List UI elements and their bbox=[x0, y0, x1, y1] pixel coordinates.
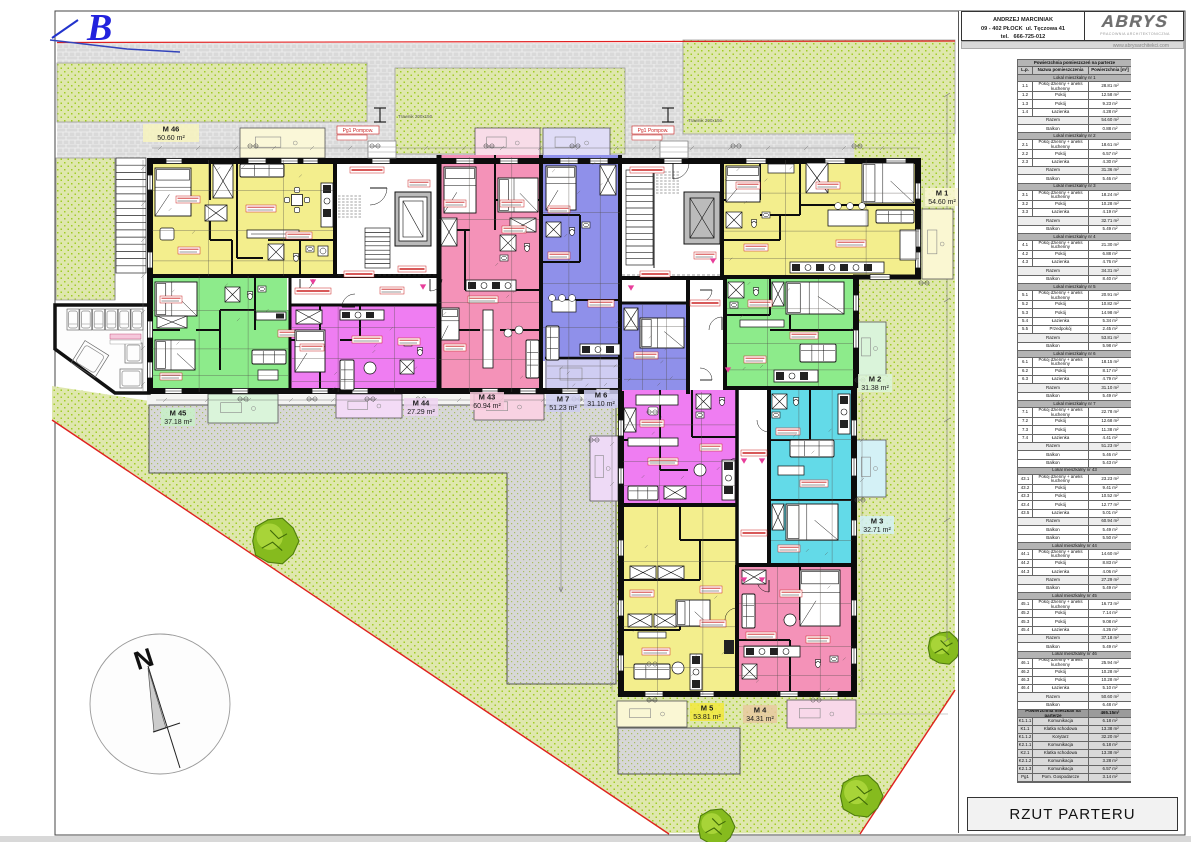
svg-text:Trawnik 200x150: Trawnik 200x150 bbox=[398, 114, 433, 119]
svg-text:M 3: M 3 bbox=[871, 517, 884, 526]
svg-text:M 45: M 45 bbox=[170, 409, 187, 418]
svg-text:M 46: M 46 bbox=[163, 125, 180, 134]
svg-text:34.31 m²: 34.31 m² bbox=[746, 716, 774, 723]
svg-text:Pg1 Pompow.: Pg1 Pompow. bbox=[343, 128, 374, 134]
svg-text:Pg1 Pompow.: Pg1 Pompow. bbox=[638, 128, 669, 134]
svg-text:31.10 m²: 31.10 m² bbox=[587, 401, 615, 408]
svg-text:37.18 m²: 37.18 m² bbox=[164, 419, 192, 426]
svg-text:M 43: M 43 bbox=[479, 393, 496, 402]
svg-text:M 7: M 7 bbox=[557, 395, 570, 404]
svg-text:M 1: M 1 bbox=[936, 189, 949, 198]
svg-text:51.23 m²: 51.23 m² bbox=[549, 405, 577, 412]
svg-text:M 44: M 44 bbox=[413, 399, 431, 408]
svg-text:M 5: M 5 bbox=[701, 704, 714, 713]
svg-text:M 4: M 4 bbox=[754, 706, 767, 715]
svg-text:31.38 m²: 31.38 m² bbox=[861, 385, 889, 392]
svg-text:27.29 m²: 27.29 m² bbox=[407, 409, 435, 416]
svg-text:32.71 m²: 32.71 m² bbox=[863, 527, 891, 534]
svg-text:M 6: M 6 bbox=[595, 391, 608, 400]
svg-text:54.60 m²: 54.60 m² bbox=[928, 199, 956, 206]
svg-text:M 2: M 2 bbox=[869, 375, 882, 384]
svg-text:Trawnik 200x150: Trawnik 200x150 bbox=[688, 118, 723, 123]
svg-text:53.81 m²: 53.81 m² bbox=[693, 714, 721, 721]
svg-text:60.94 m²: 60.94 m² bbox=[473, 403, 501, 410]
svg-text:50.60 m²: 50.60 m² bbox=[157, 135, 185, 142]
svg-text:B: B bbox=[86, 7, 112, 49]
